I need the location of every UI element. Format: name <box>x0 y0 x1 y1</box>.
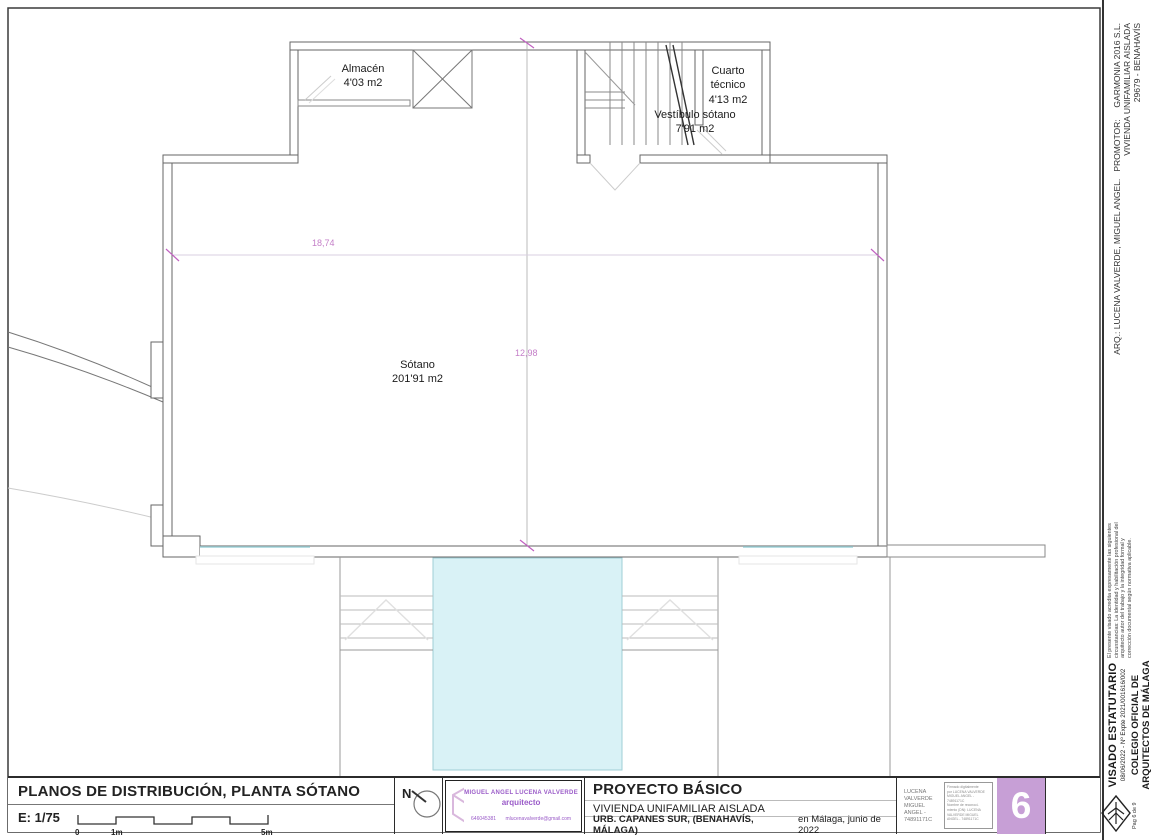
room-area: 4'03 m2 <box>318 76 408 90</box>
scale-mark-0: 0 <box>75 828 79 837</box>
basement-walls <box>151 42 1045 557</box>
room-name: Almacén <box>318 62 408 76</box>
registration-line: 29679 - BENAHAVÍS <box>1132 23 1142 463</box>
sidebar-divider <box>1102 0 1104 840</box>
elevator-shaft <box>413 50 472 108</box>
pool <box>433 558 622 770</box>
room-name: Vestíbulo sótano <box>637 108 753 122</box>
room-name: Sótano <box>370 358 465 372</box>
architect-stamp: MIGUEL ANGEL LUCENA VALVERDE arquitecto … <box>445 780 582 832</box>
signer-name: LUCENA VALVERDE MIGUEL ANGEL - 74891171C <box>904 789 933 824</box>
room-label-almacen: Almacén 4'03 m2 <box>318 62 408 91</box>
project-info-cell: PROYECTO BÁSICO VIVIENDA UNIFAMILIAR AIS… <box>585 778 897 834</box>
room-area: 4'13 m2 <box>701 93 755 107</box>
room-area: 201'91 m2 <box>370 372 465 386</box>
drawing-sheet: Almacén 4'03 m2 Vestíbulo sótano 7'91 m2… <box>0 0 1160 840</box>
room-label-vestibulo: Vestíbulo sótano 7'91 m2 <box>637 108 753 137</box>
title-cell: PLANOS DE DISTRIBUCIÓN, PLANTA SÓTANO E:… <box>8 778 395 834</box>
north-arrow-cell: N <box>395 778 443 834</box>
colegio-name: ARQUITECTOS DE MÁLAGA <box>1141 658 1152 792</box>
sheet-title: PLANOS DE DISTRIBUCIÓN, PLANTA SÓTANO <box>8 778 394 805</box>
floor-plan-drawing <box>0 0 1160 840</box>
graphic-scale-bar <box>70 810 290 828</box>
registration-line: ARQ.: LUCENA VALVERDE, MIGUEL ANGEL. PRO… <box>1112 23 1122 463</box>
cube-logo-icon <box>449 783 464 829</box>
room-name: Cuarto técnico <box>701 64 755 93</box>
room-label-sotano: Sótano 201'91 m2 <box>370 358 465 387</box>
page-indicator: Pag 6 de 9 <box>1132 793 1138 829</box>
room-label-cuarto: Cuarto técnico 4'13 m2 <box>701 64 755 107</box>
sheet-number: 6 <box>1011 785 1032 827</box>
digital-signature-stamp: Firmado digitalmente por LUCENA VALVERDE… <box>944 782 993 829</box>
signature-cell: LUCENA VALVERDE MIGUEL ANGEL - 74891171C… <box>897 778 997 834</box>
dimension-height: 12,98 <box>515 348 538 358</box>
stamp-role: arquitecto <box>464 798 578 807</box>
registration-line: VIVIENDA UNIFAMILIAR AISLADA <box>1122 23 1132 463</box>
architect-stamp-cell: MIGUEL ANGEL LUCENA VALVERDE arquitecto … <box>443 778 585 834</box>
registration-info: ARQ.: LUCENA VALVERDE, MIGUEL ANGEL. PRO… <box>1112 23 1142 463</box>
visado-note: El presente visado acredita expresamente… <box>1107 502 1133 658</box>
project-address: URB. CAPANES SUR, (BENAHAVÍS, MÁLAGA) <box>593 814 784 836</box>
scale-text: E: 1/75 <box>18 810 60 825</box>
visado-stamp: VISADO ESTATUTARIO 08/06/2022 - Nº Expte… <box>1107 658 1152 792</box>
terrain-contours <box>8 332 163 520</box>
sheet-number-cell: 6 <box>997 778 1046 834</box>
room-area: 7'91 m2 <box>637 122 753 136</box>
stamp-architect-name: MIGUEL ANGEL LUCENA VALVERDE <box>464 790 578 796</box>
colegio-logo-icon <box>1100 794 1132 834</box>
north-label: N <box>402 786 411 801</box>
project-date: en Málaga, junio de 2022 <box>798 814 896 836</box>
dimension-lines <box>166 249 884 261</box>
section-line <box>520 38 534 551</box>
stamp-email: mlucenavalverde@gmail.com <box>505 816 571 822</box>
project-type: PROYECTO BÁSICO <box>585 778 896 801</box>
title-block: PLANOS DE DISTRIBUCIÓN, PLANTA SÓTANO E:… <box>8 776 1100 832</box>
visado-reference: 08/06/2022 - Nº Expte 2021/001616/002 <box>1120 658 1127 792</box>
visado-title: VISADO ESTATUTARIO <box>1107 658 1119 792</box>
stamp-phone: 646045381 <box>471 816 496 822</box>
scale-mark-5m: 5m <box>261 828 273 837</box>
scale-mark-1m: 1m <box>111 828 123 837</box>
dimension-width: 18,74 <box>312 238 335 248</box>
colegio-name: COLEGIO OFICIAL DE <box>1130 658 1141 792</box>
